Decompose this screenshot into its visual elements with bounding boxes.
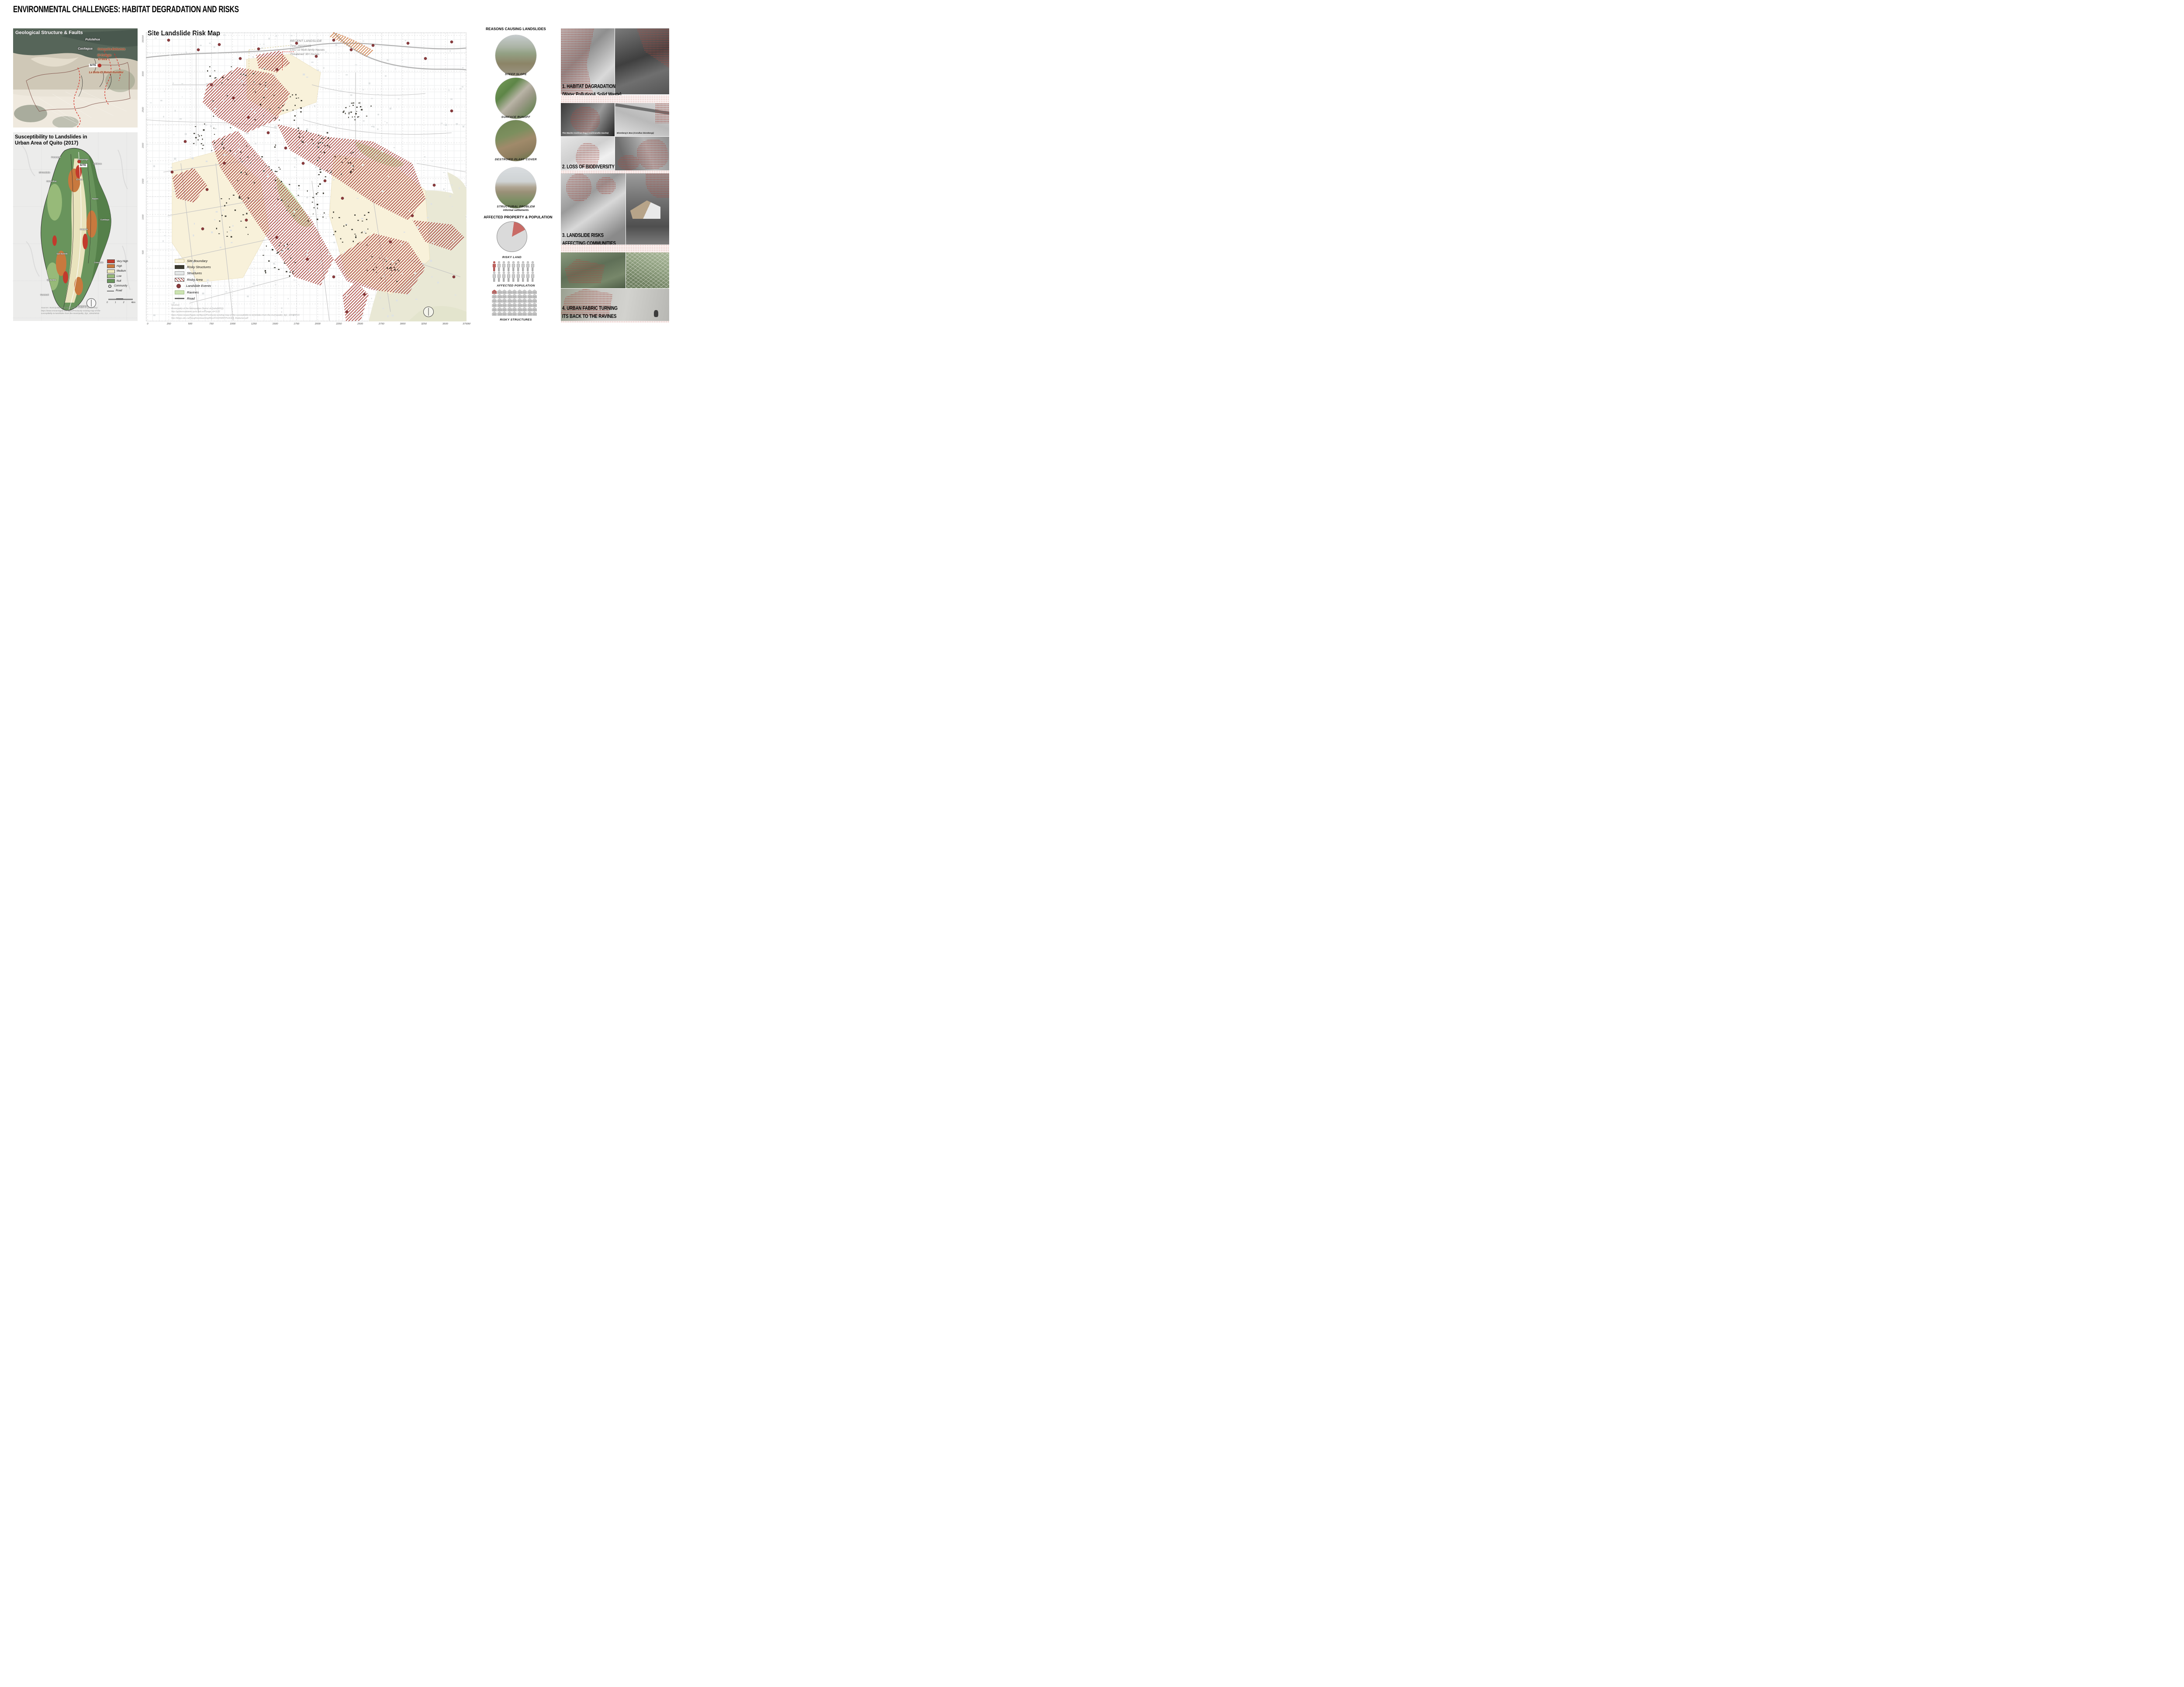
house-icon (512, 303, 517, 307)
photo-structural-problem (495, 167, 536, 208)
landslide-dot-icon (176, 284, 181, 288)
x-axis-tick: 1000 (230, 323, 235, 325)
community-label: Quitumbe (47, 279, 56, 281)
geological-terrain-art (13, 28, 138, 128)
landslide-event-dot (372, 44, 374, 47)
house-icon (497, 307, 502, 311)
photo-boa (615, 103, 669, 136)
house-icon (507, 290, 512, 294)
photo-habitat-degradation-right (615, 28, 669, 94)
landslide-event-dot (341, 197, 344, 200)
house-icon (502, 290, 507, 294)
person-icon (516, 272, 521, 282)
legend-label: Risky Structures (187, 265, 211, 269)
geo-map-label: El Inca (98, 58, 107, 61)
house-icon (517, 303, 522, 307)
source-line: https://www.researchgate.net/figure/Prev… (171, 314, 355, 317)
risk-map-north-compass-icon (423, 307, 434, 317)
house-icon (502, 311, 507, 316)
landslide-event-dot (411, 214, 414, 217)
house-icon (522, 303, 527, 307)
landslide-event-dot (424, 57, 427, 60)
geo-panel-title: Geological Structure & Faults (15, 30, 83, 35)
house-icon (492, 298, 497, 303)
house-icon (527, 307, 532, 311)
geo-map-label: La Bota-El Batan-Ilumbisi (89, 71, 124, 74)
geological-structure-panel: Geological Structure & Faults PululahuaC… (13, 28, 138, 128)
y-axis-tick: 1000 (142, 214, 145, 220)
house-icon (522, 294, 527, 298)
road-line-icon (107, 291, 114, 292)
house-icon (492, 311, 497, 316)
landslide-event-dot (363, 293, 366, 296)
caption-destroyed-plant-cover: DESTROIED PLANT COVER (495, 158, 537, 161)
house-icon (517, 311, 522, 316)
landslide-event-dot (450, 110, 453, 112)
caption-frog: The Mache Cochran frog ( Cochranella mac… (562, 132, 608, 135)
landslide-event-dot (389, 241, 392, 243)
landslide-event-dot (332, 276, 335, 278)
legend-label: High (117, 265, 122, 268)
affected-population-pictograph (492, 261, 538, 282)
landslide-event-dot (407, 42, 409, 45)
house-icon (532, 307, 537, 311)
legend-swatch (175, 259, 184, 263)
house-icon (512, 294, 517, 298)
person-icon (506, 261, 511, 272)
house-icon (502, 303, 507, 307)
house-shape (630, 200, 660, 219)
person-icon (497, 261, 501, 272)
legend-label: Road (187, 297, 195, 300)
house-icon (502, 307, 507, 311)
house-icon (532, 311, 537, 316)
caption-informal-settlements: informal settlements (503, 209, 529, 212)
house-icon (522, 307, 527, 311)
person-icon (497, 272, 501, 282)
landslide-event-dot (453, 276, 455, 278)
risk-legend-row: Ravines (175, 289, 211, 295)
community-label: Guamani (40, 294, 48, 296)
risk-map-legend: Site BoundaryRisky StructuresStructuresR… (175, 258, 211, 302)
risk-legend-row: Site Boundary (175, 258, 211, 264)
house-icon (532, 298, 537, 303)
legend-swatch (107, 274, 115, 278)
house-icon (492, 303, 497, 307)
community-label: Cotocollao (46, 180, 56, 183)
house-icon (522, 298, 527, 303)
house-icon (527, 290, 532, 294)
landslide-event-dot (223, 162, 226, 165)
legend-swatch (107, 264, 115, 268)
x-axis-tick: 1500 (273, 323, 278, 325)
risk-overlay (655, 103, 669, 123)
recent-landslide-annotation: RECENT LANDSLIDE Time: 2021/03/03 Loss: … (290, 39, 347, 57)
annotation-leader-line (282, 52, 294, 70)
landslide-event-dot (184, 140, 187, 143)
landslide-event-dot (450, 41, 453, 43)
community-label: San Bartolo (56, 253, 67, 255)
person-icon (521, 261, 525, 272)
sus-legend-row: High (107, 264, 137, 269)
reasons-title: REASONS CAUSING LANDSLIDES (486, 27, 546, 31)
house-icon (527, 294, 532, 298)
person-icon (501, 272, 506, 282)
scale-label: 1 (115, 301, 116, 304)
x-axis-tick: 2000 (315, 323, 321, 325)
landslide-event-dot (247, 116, 250, 119)
risk-overlay (596, 177, 615, 195)
y-axis-tick: 3500M (142, 35, 145, 43)
house-icon (527, 298, 532, 303)
risk-overlay (615, 28, 669, 94)
risk-overlay (570, 107, 600, 133)
legend-label: Null (117, 280, 121, 283)
scale-label: 4km (131, 301, 135, 304)
x-axis-tick: 3500 (442, 323, 448, 325)
geo-site-dot (98, 64, 101, 67)
geo-map-label: Catequilla Bellavista (97, 48, 125, 51)
source-line: Sources: (171, 304, 355, 307)
house-icon (522, 290, 527, 294)
community-label: El Inca (76, 179, 83, 181)
risk-overlay (566, 173, 592, 202)
house-icon (532, 290, 537, 294)
poster-title: ENVIRONMENTAL CHALLENGES: HABITAT DEGRAD… (13, 4, 239, 15)
sus-site-label: SITE (79, 164, 87, 167)
photo-steep-slope (495, 35, 536, 76)
community-label: Pomasqui (51, 156, 61, 159)
person-icon (492, 272, 497, 282)
risk-map-plot: 3500M30002500200015001000500 02505007501… (146, 32, 467, 321)
landslide-event-dot (239, 57, 242, 60)
risk-legend-row: Risky Structures (175, 264, 211, 270)
affected-title: AFFECTED PROPERTY & POPULATION (484, 215, 552, 219)
landslide-event-dot (276, 68, 278, 71)
x-axis-tick: 1750 (294, 323, 299, 325)
sus-legend-row: Medium (107, 269, 137, 274)
house-icon (527, 303, 532, 307)
house-icon (497, 311, 502, 316)
community-label: Calderon (93, 163, 102, 165)
risk-legend-row: Road (175, 295, 211, 301)
community-label: Conocoto (94, 262, 104, 264)
x-axis-tick: 750 (209, 323, 214, 325)
house-icon (512, 307, 517, 311)
legend-label: Medium (117, 270, 126, 273)
x-axis-tick: 500 (188, 323, 192, 325)
legend-swatch (107, 259, 115, 263)
legend-label: Road (116, 290, 122, 292)
house-icon (497, 298, 502, 303)
house-icon (517, 298, 522, 303)
scale-label: 2 (123, 301, 124, 304)
house-icon (507, 303, 512, 307)
legend-label: Landslide Events (186, 284, 211, 288)
landslide-event-dot (167, 39, 170, 41)
house-icon (507, 298, 512, 303)
house-icon (512, 290, 517, 294)
geo-site-label: SITE (89, 64, 97, 67)
community-label: El Condado (39, 172, 50, 174)
house-icon (532, 294, 537, 298)
community-label: Carapungo (78, 159, 88, 161)
house-icon (527, 311, 532, 316)
site-landslide-risk-map: Site Landslide Risk Map (144, 29, 467, 328)
risk-overlay (618, 155, 639, 170)
x-axis-tick: 3000 (400, 323, 406, 325)
community-icon (108, 285, 111, 288)
sus-scalebar (108, 299, 133, 300)
caption-boa: Blomberg's Boa (Corallus blombergi) (617, 132, 654, 135)
house-icon (502, 294, 507, 298)
x-axis-tick: 3750M (463, 323, 470, 325)
person-icon-highlighted (492, 261, 497, 272)
legend-swatch (175, 265, 184, 269)
geo-map-label: Pululahua (85, 38, 100, 41)
community-label: Cumbaya (100, 219, 109, 221)
y-axis-tick: 2500 (142, 107, 145, 112)
legend-label: Low (117, 275, 121, 278)
x-axis-tick: 2500 (357, 323, 363, 325)
geo-map-label: El Colegio (97, 54, 111, 57)
risk-legend-row: Landslide Events (175, 283, 211, 289)
house-icon (497, 303, 502, 307)
house-icon (492, 307, 497, 311)
landslide-event-dot (171, 171, 173, 173)
source-line: https://www.researchgate.net/figure/Prev… (41, 310, 137, 313)
source-line: http://blogs.ubc.ca/thoughtsonteaching/f… (171, 317, 355, 321)
house-icon (497, 294, 502, 298)
finding-4-title: 4. URBAN FABRIC TURNINGITS BACK TO THE R… (562, 305, 618, 321)
house-icon (507, 311, 512, 316)
caption-risky-structures: RISKY STRUCTURES (500, 318, 532, 321)
house-icon (507, 307, 512, 311)
risky-land-pie-chart (497, 221, 527, 252)
risky-structures-pictograph (492, 290, 538, 316)
sus-scalebar-labels: 0124km (107, 301, 135, 304)
house-icon (517, 307, 522, 311)
house-icon (517, 294, 522, 298)
person-icon (530, 272, 535, 282)
risk-overlay (565, 259, 605, 284)
landslide-event-dot (206, 188, 208, 191)
photo-surface-runoff (495, 78, 536, 119)
person-icon (511, 261, 516, 272)
road-line-icon (175, 298, 184, 299)
risk-overlay (646, 173, 669, 198)
source-line: Sources: Municipality of the Metropolita… (41, 307, 137, 310)
caption-surface-runoff: SURFACE RUNOFF (501, 116, 530, 119)
legend-label: Ravines (187, 290, 199, 294)
sus-legend-row: Road (107, 289, 137, 293)
photo-urban-fabric-ravine (561, 252, 625, 288)
house-icon (512, 298, 517, 303)
landslide-event-dot (218, 43, 221, 46)
landslide-event-dot (350, 48, 352, 51)
landslide-event-dot (245, 219, 248, 221)
legend-label: Very High (117, 260, 128, 263)
risky-area-swatch (175, 278, 184, 282)
sus-legend-row: Null (107, 279, 137, 283)
y-axis-tick: 3000 (142, 71, 145, 76)
x-axis-tick: 250 (167, 323, 171, 325)
landslide-event-dot (324, 179, 326, 182)
person-icon (516, 261, 521, 272)
landslide-event-dot (306, 258, 309, 261)
netting-texture (626, 252, 669, 288)
legend-swatch (175, 271, 184, 275)
house-icon (502, 298, 507, 303)
caption-steep-slope: STEEP SLOPE (505, 73, 527, 76)
source-line: http://gobiernoabierto.quito.gob.ec/?pag… (171, 310, 355, 314)
house-icon-highlighted (492, 290, 497, 294)
x-axis-tick: 2250 (336, 323, 342, 325)
x-axis-tick: 1250 (251, 323, 257, 325)
landslide-event-dot (267, 131, 270, 134)
source-line: susceptibility-to-landslides-from-the-mu… (41, 312, 137, 315)
house-icon (532, 303, 537, 307)
divider-strip (561, 170, 669, 173)
landslide-event-dot (276, 236, 278, 239)
risk-legend-row: Structures (175, 270, 211, 276)
divider-strip (561, 321, 669, 323)
community-label: Nayon (92, 198, 98, 200)
landslide-event-dot (257, 48, 260, 50)
legend-label: Site Boundary (187, 259, 207, 263)
landslide-event-dot (302, 162, 304, 165)
source-line: Municipality of the Metropolitan Distric… (171, 307, 355, 311)
sus-legend-row: Community (107, 283, 137, 288)
house-icon (522, 311, 527, 316)
person-icon (521, 272, 525, 282)
risk-legend-row: Risky Area (175, 276, 211, 283)
caption-affected-population: AFFECTED POPULATION (497, 284, 535, 287)
person-icon (506, 272, 511, 282)
landslide-event-dot (197, 48, 200, 51)
sus-legend-row: Low (107, 274, 137, 279)
legend-swatch (107, 269, 115, 273)
landslide-event-dot (232, 97, 235, 99)
y-axis-tick: 2000 (142, 143, 145, 148)
x-axis-tick: 2750 (379, 323, 384, 325)
sus-legend: Very HighHighMediumLowNullCommunityRoad (107, 259, 137, 293)
landslide-event-dot (284, 147, 287, 149)
x-axis-tick: 0 (147, 323, 148, 325)
person-icon (511, 272, 516, 282)
house-icon (512, 311, 517, 316)
sus-sources: Sources: Municipality of the Metropolita… (41, 307, 137, 315)
photo-green-macaw (615, 137, 669, 170)
landslide-event-dot (201, 228, 204, 230)
house-icon (492, 294, 497, 298)
legend-label: Structures (187, 271, 202, 275)
house-icon (507, 294, 512, 298)
house-icon (497, 290, 502, 294)
caption-risky-land: RISKY LAND (502, 256, 522, 259)
photo-frog (561, 103, 615, 136)
caption-structural-problem: STRUCTURAL PROBLEM (497, 205, 535, 208)
divider-strip (561, 245, 669, 252)
risk-map-sources: Sources:Municipality of the Metropolitan… (171, 304, 355, 321)
person-icon (525, 261, 530, 272)
photo-hillside-netting (626, 252, 669, 288)
landslide-event-dot (210, 83, 213, 86)
motorcyclist-shape (654, 310, 658, 317)
person-icon (501, 261, 506, 272)
landslide-event-dot (433, 184, 435, 186)
scale-label: 0 (107, 301, 108, 304)
person-icon (530, 261, 535, 272)
divider-strip (561, 95, 669, 103)
community-label: Guapulo (80, 228, 88, 231)
sus-panel-title: Susceptibility to Landslides in Urban Ar… (15, 134, 87, 147)
photo-landslide-community-right (626, 173, 669, 245)
y-axis-tick: 1500 (142, 179, 145, 184)
legend-swatch (107, 279, 115, 283)
geo-map-label: Casitagua (78, 48, 92, 51)
x-axis-tick: 3250 (421, 323, 427, 325)
legend-label: Community (114, 285, 127, 287)
poster-canvas: ENVIRONMENTAL CHALLENGES: HABITAT DEGRAD… (0, 0, 685, 334)
house-icon (517, 290, 522, 294)
susceptibility-map-panel: Susceptibility to Landslides in Urban Ar… (13, 132, 138, 321)
person-icon (525, 272, 530, 282)
legend-swatch (175, 290, 184, 294)
sus-legend-row: Very High (107, 259, 137, 264)
y-axis-tick: 500 (142, 250, 145, 254)
risk-overlay (637, 139, 668, 169)
legend-label: Risky Area (187, 278, 203, 282)
photo-destroyed-plant-cover (495, 120, 536, 161)
